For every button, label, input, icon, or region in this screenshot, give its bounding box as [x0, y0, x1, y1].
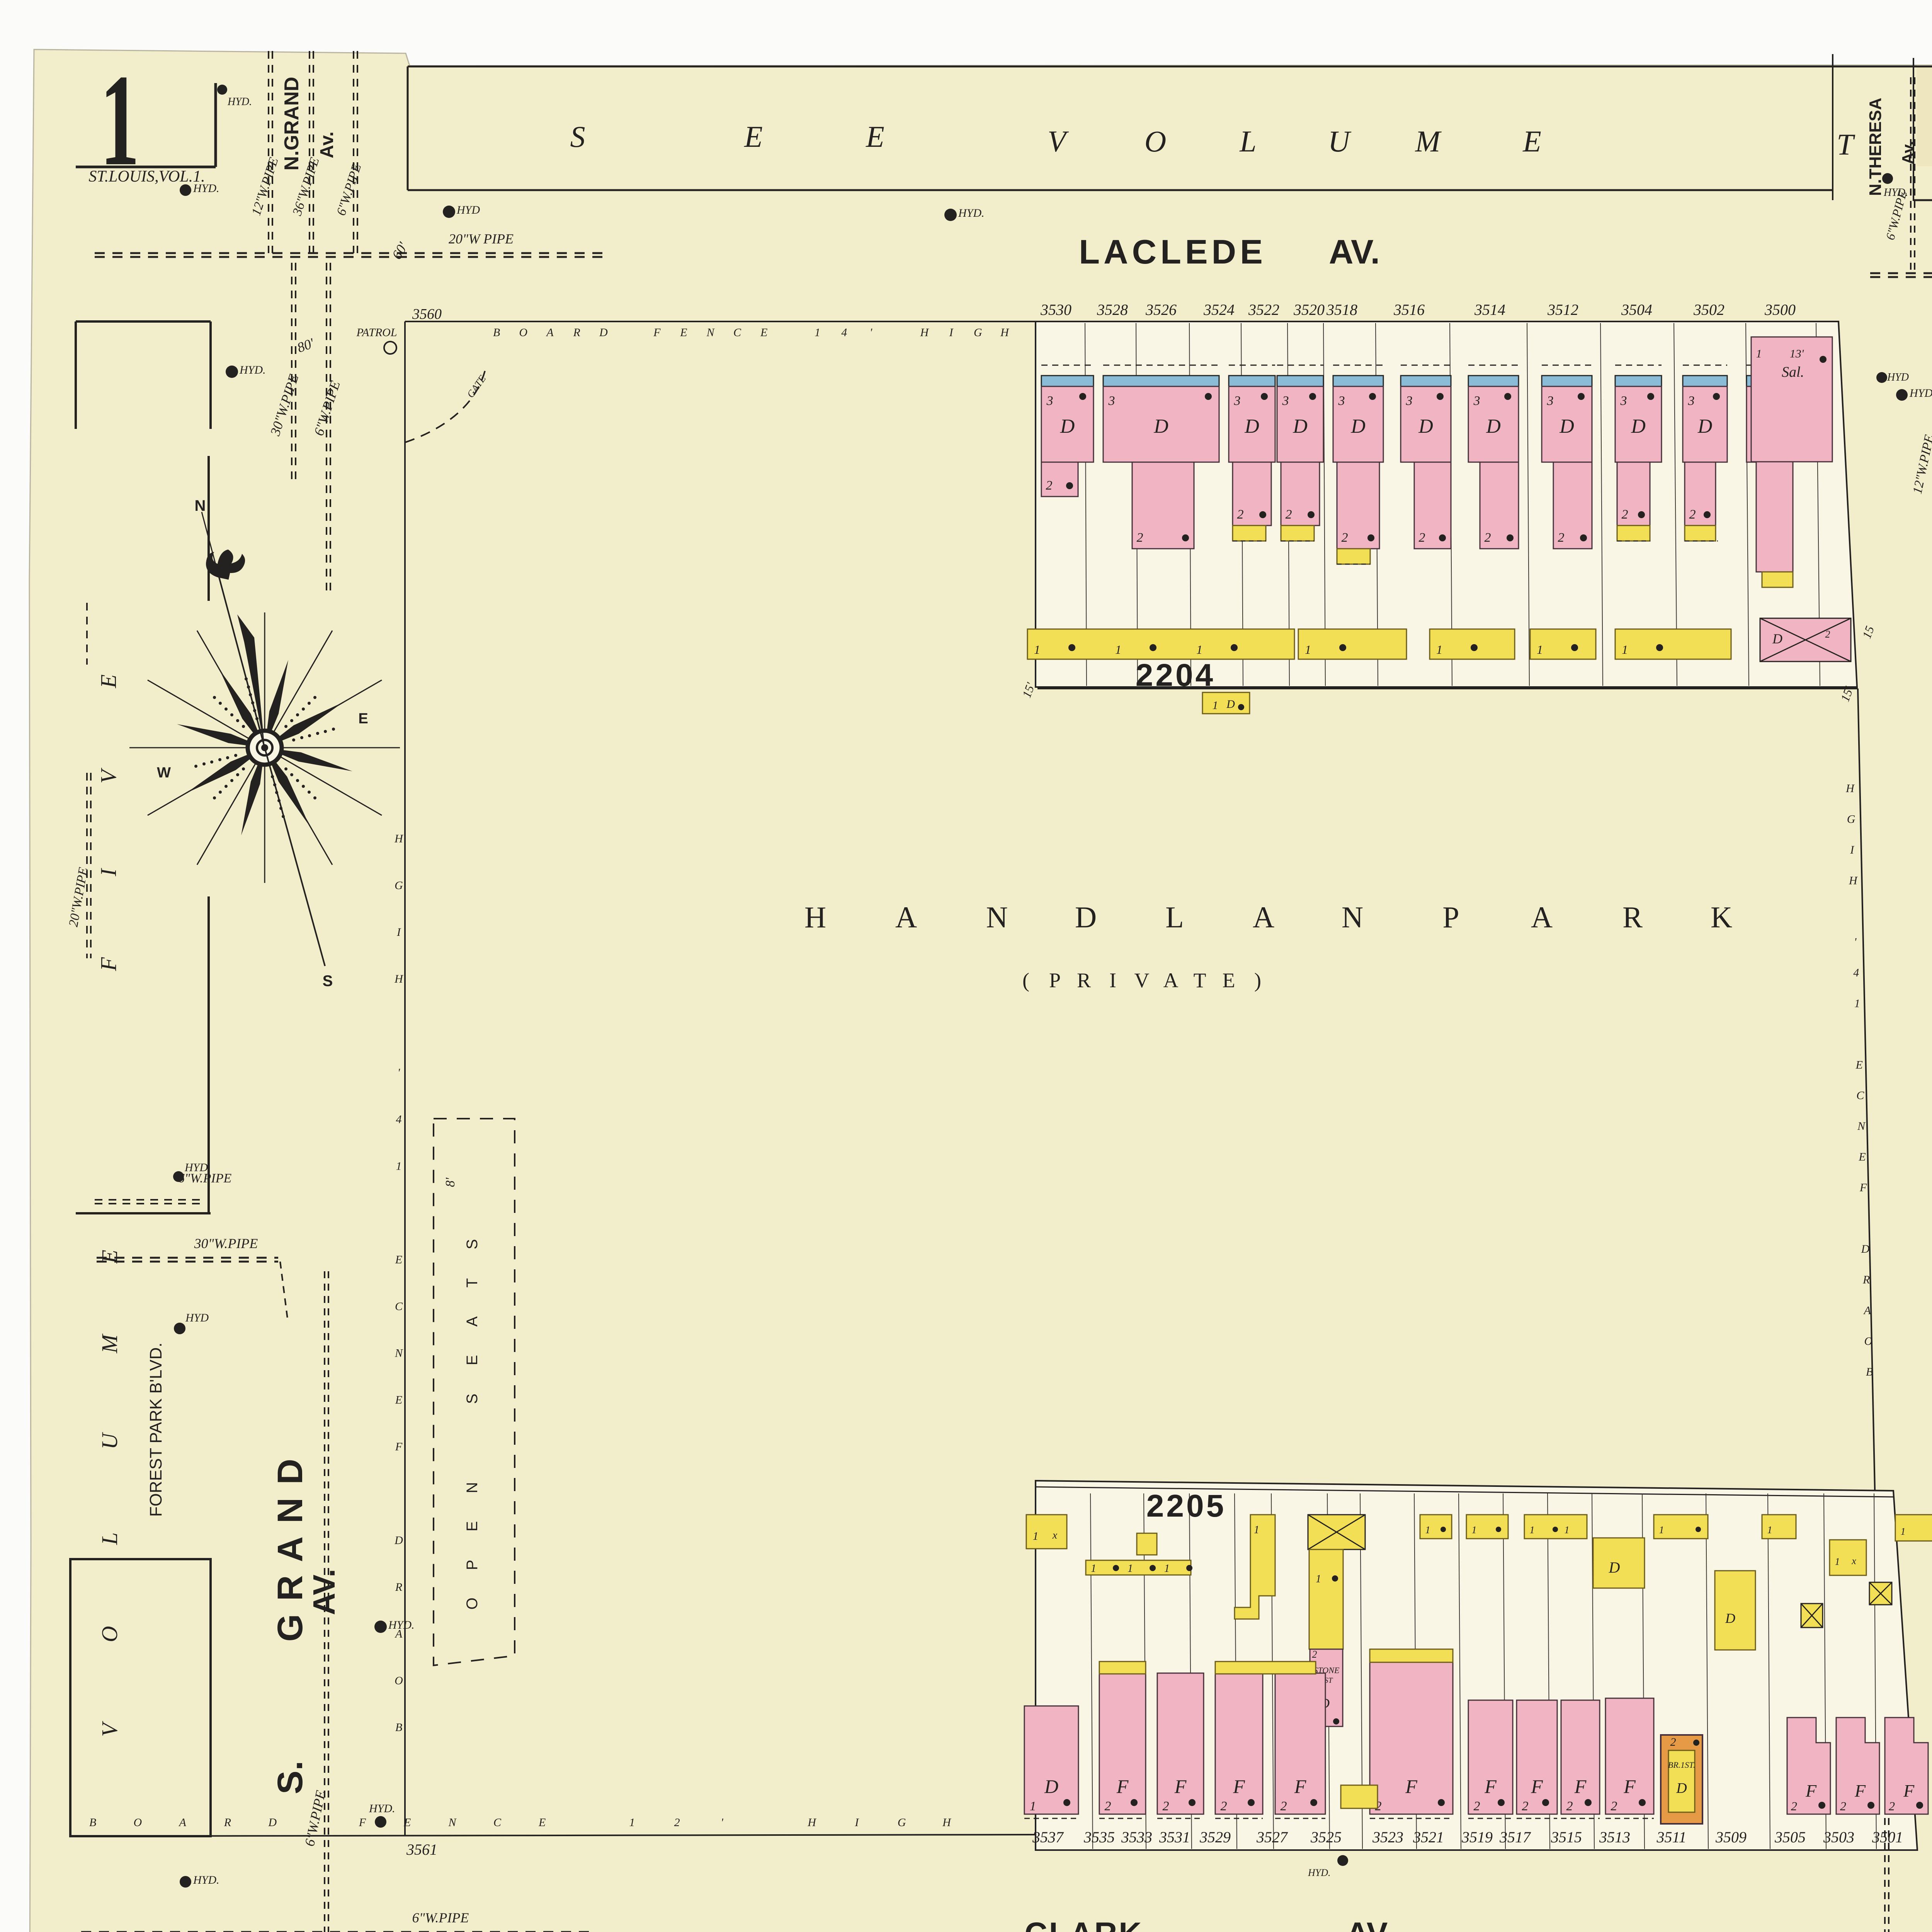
svg-text:1: 1 — [1091, 1563, 1096, 1575]
svg-text:x: x — [1851, 1555, 1856, 1566]
svg-text:1: 1 — [1436, 643, 1442, 656]
svg-text:O: O — [395, 1674, 403, 1687]
svg-text:F: F — [1623, 1776, 1636, 1797]
svg-text:PATROL: PATROL — [356, 326, 397, 339]
svg-text:2: 2 — [1670, 1736, 1676, 1748]
svg-text:T: T — [464, 1278, 481, 1287]
svg-text:1: 1 — [1128, 1563, 1133, 1575]
svg-text:R: R — [1862, 1274, 1870, 1286]
svg-text:HYD: HYD — [1887, 371, 1909, 383]
svg-text:(: ( — [1022, 969, 1029, 992]
svg-text:3: 3 — [1620, 394, 1627, 408]
svg-text:D: D — [1153, 415, 1168, 437]
svg-text:3520: 3520 — [1293, 301, 1325, 318]
svg-text:1: 1 — [1530, 1524, 1535, 1536]
svg-text:3: 3 — [1234, 394, 1241, 408]
svg-text:E: E — [464, 1355, 481, 1366]
svg-text:P: P — [1049, 969, 1061, 992]
svg-text:D: D — [1486, 415, 1501, 437]
svg-text:2: 2 — [1137, 531, 1143, 545]
svg-text:AV.: AV. — [1346, 1916, 1393, 1932]
svg-text:3500: 3500 — [1764, 301, 1796, 318]
svg-text:D: D — [1075, 900, 1097, 934]
svg-text:Sal.: Sal. — [1782, 364, 1804, 380]
svg-text:E: E — [464, 1521, 481, 1532]
svg-text:T: T — [1837, 128, 1855, 161]
svg-text:3: 3 — [1547, 394, 1554, 408]
svg-text:F: F — [1805, 1781, 1817, 1801]
svg-text:1: 1 — [1115, 643, 1121, 656]
svg-text:F: F — [96, 957, 121, 971]
svg-text:BR.1ST.: BR.1ST. — [1668, 1760, 1695, 1770]
svg-text:HYD: HYD — [456, 204, 480, 216]
svg-text:H: H — [942, 1816, 952, 1829]
svg-text:2: 2 — [1312, 1649, 1317, 1660]
svg-text:D: D — [1861, 1243, 1870, 1255]
svg-text:F: F — [1294, 1776, 1306, 1797]
svg-text:D: D — [1350, 415, 1366, 437]
svg-text:2: 2 — [1286, 507, 1292, 522]
svg-text:3505: 3505 — [1774, 1828, 1806, 1846]
svg-text:O: O — [1864, 1335, 1873, 1348]
svg-text:L: L — [97, 1532, 122, 1545]
svg-text:3504: 3504 — [1621, 301, 1652, 318]
svg-text:2: 2 — [1689, 507, 1696, 522]
svg-text:M: M — [97, 1333, 122, 1354]
svg-text:HYD.: HYD. — [388, 1619, 415, 1631]
svg-text:E: E — [866, 120, 884, 153]
svg-text:HYD: HYD — [185, 1311, 209, 1324]
svg-text:R: R — [395, 1581, 402, 1594]
svg-text:S: S — [323, 973, 333, 990]
svg-text:R: R — [573, 326, 580, 339]
svg-text:N: N — [464, 1482, 481, 1493]
svg-text:): ) — [1254, 969, 1261, 992]
svg-text:G: G — [395, 879, 403, 892]
svg-text:E: E — [760, 326, 767, 339]
svg-text:E: E — [358, 711, 368, 727]
svg-text:4: 4 — [396, 1113, 402, 1126]
svg-text:LACLEDE: LACLEDE — [1079, 233, 1267, 271]
svg-text:D: D — [394, 1534, 403, 1547]
svg-text:F: F — [1174, 1776, 1187, 1797]
svg-text:3515: 3515 — [1551, 1828, 1582, 1846]
svg-text:H: H — [920, 326, 930, 339]
svg-text:H: H — [394, 973, 404, 985]
svg-text:D: D — [1772, 631, 1782, 646]
svg-text:1: 1 — [1622, 643, 1628, 656]
svg-text:H: H — [394, 832, 404, 845]
svg-text:3518: 3518 — [1326, 301, 1357, 318]
svg-text:N: N — [706, 326, 715, 339]
svg-text:13': 13' — [1790, 347, 1804, 360]
svg-text:3: 3 — [1688, 394, 1695, 408]
svg-text:F: F — [1854, 1781, 1866, 1801]
svg-text:3530: 3530 — [1040, 301, 1071, 318]
svg-text:S: S — [464, 1394, 481, 1404]
svg-text:6"W.PIPE: 6"W.PIPE — [412, 1910, 469, 1925]
svg-text:E: E — [1223, 969, 1235, 992]
svg-text:HYD.: HYD. — [239, 364, 266, 376]
svg-text:1: 1 — [1537, 643, 1543, 656]
svg-text:C: C — [733, 326, 742, 339]
svg-text:2: 2 — [1474, 1799, 1480, 1813]
svg-text:3: 3 — [1046, 394, 1053, 408]
svg-text:2: 2 — [1485, 531, 1491, 545]
svg-text:3517: 3517 — [1499, 1828, 1531, 1846]
svg-text:A: A — [546, 326, 554, 339]
svg-text:D: D — [1559, 415, 1574, 437]
svg-text:P: P — [464, 1560, 481, 1570]
svg-text:K: K — [1711, 900, 1732, 934]
svg-text:D: D — [1418, 415, 1433, 437]
svg-text:3527: 3527 — [1256, 1828, 1288, 1846]
svg-text:I: I — [96, 868, 121, 877]
svg-text:1: 1 — [1254, 1524, 1259, 1536]
svg-text:S: S — [464, 1239, 481, 1250]
svg-text:HYD: HYD — [1909, 387, 1932, 400]
svg-text:P: P — [1442, 900, 1459, 934]
svg-text:2: 2 — [1046, 478, 1053, 493]
svg-text:D: D — [268, 1816, 277, 1829]
svg-text:3513: 3513 — [1599, 1828, 1630, 1846]
svg-text:F: F — [1859, 1181, 1867, 1194]
svg-text:N: N — [448, 1816, 457, 1829]
svg-text:V: V — [1134, 969, 1150, 992]
svg-text:': ' — [398, 1066, 400, 1079]
svg-text:O: O — [519, 326, 527, 339]
svg-text:2: 2 — [1825, 629, 1830, 640]
svg-text:B: B — [395, 1721, 402, 1734]
svg-text:3: 3 — [1338, 394, 1345, 408]
svg-text:O: O — [133, 1816, 142, 1829]
svg-text:HYD: HYD — [184, 1161, 208, 1174]
svg-text:': ' — [721, 1816, 723, 1829]
svg-text:HYD.: HYD. — [1308, 1867, 1331, 1878]
svg-text:': ' — [1854, 935, 1857, 948]
svg-text:A: A — [1531, 900, 1553, 934]
svg-text:1: 1 — [1213, 699, 1218, 712]
svg-text:D: D — [1226, 698, 1235, 711]
svg-text:E: E — [1522, 124, 1541, 158]
svg-text:1: 1 — [1472, 1524, 1477, 1536]
svg-text:A: A — [1163, 969, 1179, 992]
svg-text:3516: 3516 — [1393, 301, 1425, 318]
svg-text:2: 2 — [674, 1816, 680, 1829]
svg-text:FOREST PARK B'LVD.: FOREST PARK B'LVD. — [146, 1343, 165, 1517]
svg-text:H: H — [1000, 326, 1010, 339]
svg-text:3503: 3503 — [1823, 1828, 1854, 1846]
svg-text:C: C — [1856, 1089, 1864, 1102]
svg-text:B: B — [89, 1816, 96, 1829]
svg-text:3501: 3501 — [1872, 1828, 1903, 1846]
svg-text:E: E — [1858, 1151, 1866, 1163]
svg-text:2: 2 — [1840, 1799, 1846, 1813]
svg-text:R: R — [224, 1816, 231, 1829]
svg-text:4: 4 — [1853, 966, 1859, 979]
svg-text:2: 2 — [1566, 1799, 1573, 1813]
svg-text:I: I — [1109, 969, 1116, 992]
svg-text:D: D — [1044, 1776, 1058, 1797]
svg-text:B: B — [1866, 1366, 1873, 1378]
svg-text:GRAND: GRAND — [270, 1446, 310, 1641]
svg-text:CLARK: CLARK — [1025, 1916, 1143, 1932]
svg-text:D: D — [1676, 1780, 1687, 1796]
svg-text:3522: 3522 — [1248, 301, 1279, 318]
svg-text:E: E — [538, 1816, 546, 1829]
svg-text:N: N — [1857, 1120, 1866, 1133]
svg-text:O: O — [464, 1597, 481, 1609]
svg-text:H: H — [804, 900, 826, 934]
svg-text:E: E — [744, 120, 763, 153]
svg-text:8': 8' — [443, 1177, 457, 1187]
svg-text:2: 2 — [1105, 1799, 1111, 1813]
svg-text:S.: S. — [270, 1761, 310, 1794]
svg-text:R: R — [1622, 900, 1643, 934]
svg-text:1: 1 — [1756, 347, 1762, 360]
svg-text:G: G — [898, 1816, 906, 1829]
svg-text:1: 1 — [629, 1816, 635, 1829]
svg-text:N.GRAND: N.GRAND — [281, 77, 303, 171]
svg-text:3528: 3528 — [1097, 301, 1128, 318]
svg-text:3511: 3511 — [1656, 1828, 1686, 1846]
svg-text:1: 1 — [396, 1160, 402, 1172]
svg-text:1: 1 — [1030, 1799, 1036, 1813]
svg-text:3526: 3526 — [1145, 301, 1177, 318]
svg-text:2204: 2204 — [1136, 658, 1215, 693]
svg-text:E: E — [680, 326, 687, 339]
svg-text:R: R — [1077, 969, 1091, 992]
svg-text:3535: 3535 — [1083, 1828, 1115, 1846]
svg-text:2: 2 — [1163, 1799, 1169, 1813]
svg-text:2: 2 — [1622, 507, 1628, 522]
svg-text:HYD.: HYD. — [193, 182, 219, 195]
svg-text:Av.: Av. — [317, 131, 337, 158]
svg-text:U: U — [1328, 124, 1352, 158]
svg-text:1: 1 — [815, 326, 820, 339]
svg-text:F: F — [1574, 1776, 1587, 1797]
svg-text:ST.LOUIS,VOL.1.: ST.LOUIS,VOL.1. — [88, 168, 205, 185]
svg-text:1: 1 — [1196, 643, 1202, 656]
svg-text:E: E — [96, 674, 121, 688]
svg-text:1: 1 — [1767, 1524, 1772, 1536]
svg-text:F: F — [1903, 1781, 1915, 1801]
svg-text:H: H — [1845, 782, 1855, 795]
svg-text:E: E — [1855, 1058, 1863, 1071]
svg-text:H: H — [1849, 874, 1858, 887]
svg-text:E: E — [403, 1816, 411, 1829]
svg-text:1: 1 — [1854, 997, 1860, 1010]
svg-text:2: 2 — [1522, 1799, 1529, 1813]
svg-text:3502: 3502 — [1693, 301, 1725, 318]
svg-text:F: F — [1484, 1776, 1497, 1797]
svg-text:N: N — [986, 900, 1008, 934]
svg-text:2: 2 — [1281, 1799, 1287, 1813]
svg-text:1: 1 — [1034, 643, 1040, 656]
svg-text:3: 3 — [1282, 394, 1289, 408]
svg-text:3514: 3514 — [1474, 301, 1505, 318]
svg-text:M: M — [1415, 124, 1442, 158]
svg-text:F: F — [1405, 1776, 1417, 1797]
svg-text:D: D — [1293, 415, 1308, 437]
svg-text:D: D — [1725, 1611, 1735, 1626]
svg-text:W: W — [157, 765, 171, 781]
svg-text:2: 2 — [1221, 1799, 1227, 1813]
svg-text:O: O — [97, 1626, 122, 1642]
svg-text:1: 1 — [1033, 1530, 1039, 1543]
svg-text:1: 1 — [1425, 1524, 1430, 1536]
svg-text:2: 2 — [1342, 531, 1348, 545]
svg-text:2: 2 — [1889, 1799, 1895, 1813]
svg-text:HYD.: HYD. — [227, 96, 252, 108]
svg-text:': ' — [870, 326, 872, 339]
svg-text:A: A — [895, 900, 917, 934]
svg-text:D: D — [1697, 415, 1713, 437]
svg-text:3: 3 — [1108, 394, 1115, 408]
svg-text:G: G — [1847, 813, 1855, 825]
svg-text:3521: 3521 — [1413, 1828, 1444, 1846]
svg-text:F: F — [359, 1816, 366, 1829]
svg-text:3: 3 — [1406, 394, 1413, 408]
svg-text:F: F — [1531, 1776, 1543, 1797]
svg-text:G: G — [974, 326, 982, 339]
svg-text:C: C — [493, 1816, 502, 1829]
svg-text:4: 4 — [841, 326, 847, 339]
svg-text:1: 1 — [1164, 1563, 1170, 1575]
svg-text:O: O — [1145, 124, 1166, 158]
svg-text:2: 2 — [1558, 531, 1565, 545]
svg-text:3561: 3561 — [406, 1841, 437, 1858]
svg-text:1: 1 — [1659, 1524, 1664, 1536]
svg-text:F: F — [1233, 1776, 1245, 1797]
svg-text:E: E — [395, 1394, 402, 1406]
svg-text:3537: 3537 — [1032, 1828, 1064, 1846]
svg-text:AV.: AV. — [1927, 1238, 1932, 1277]
svg-text:A: A — [1863, 1304, 1871, 1317]
svg-text:N.THERESA: N.THERESA — [1866, 98, 1885, 196]
svg-text:U: U — [97, 1432, 122, 1449]
svg-text:A: A — [178, 1816, 186, 1829]
svg-text:3512: 3512 — [1547, 301, 1578, 318]
svg-text:D: D — [1631, 415, 1646, 437]
svg-text:C: C — [395, 1300, 403, 1313]
svg-text:3524: 3524 — [1203, 301, 1235, 318]
svg-text:N: N — [395, 1347, 403, 1360]
svg-text:D: D — [1609, 1559, 1620, 1576]
svg-text:2: 2 — [1419, 531, 1425, 545]
svg-text:2: 2 — [1611, 1799, 1617, 1813]
svg-text:HYD.: HYD. — [193, 1874, 219, 1886]
svg-text:D: D — [1244, 415, 1259, 437]
svg-text:3519: 3519 — [1461, 1828, 1493, 1846]
svg-text:D: D — [599, 326, 608, 339]
svg-text:30"W.PIPE: 30"W.PIPE — [194, 1236, 258, 1251]
svg-text:B: B — [493, 326, 500, 339]
svg-text:1: 1 — [1901, 1526, 1906, 1537]
svg-text:AV.: AV. — [1329, 233, 1380, 271]
svg-text:1: 1 — [1305, 643, 1311, 656]
svg-text:3509: 3509 — [1715, 1828, 1747, 1846]
svg-text:3525: 3525 — [1310, 1828, 1342, 1846]
svg-text:N: N — [195, 497, 206, 514]
svg-text:L: L — [1239, 124, 1256, 158]
svg-text:S: S — [570, 120, 585, 153]
svg-text:A: A — [464, 1316, 481, 1327]
svg-text:20"W PIPE: 20"W PIPE — [449, 231, 514, 247]
svg-text:3533: 3533 — [1121, 1828, 1152, 1846]
svg-text:D: D — [1060, 415, 1075, 437]
svg-text:2: 2 — [1237, 507, 1244, 522]
svg-text:3531: 3531 — [1159, 1828, 1190, 1846]
svg-text:V: V — [1048, 124, 1069, 158]
svg-text:3560: 3560 — [412, 306, 442, 322]
svg-text:3529: 3529 — [1199, 1828, 1231, 1846]
svg-text:F: F — [395, 1440, 403, 1453]
svg-text:F: F — [1116, 1776, 1129, 1797]
svg-text:2205: 2205 — [1146, 1488, 1226, 1524]
svg-text:T: T — [1194, 969, 1206, 992]
svg-text:A: A — [1253, 900, 1274, 934]
svg-text:3523: 3523 — [1372, 1828, 1403, 1846]
svg-text:H: H — [807, 1816, 817, 1829]
svg-text:1: 1 — [1316, 1573, 1321, 1585]
svg-text:2: 2 — [1791, 1799, 1797, 1813]
svg-text:3: 3 — [1473, 394, 1480, 408]
svg-text:HYD.: HYD. — [958, 207, 985, 219]
svg-text:F: F — [653, 326, 661, 339]
svg-text:N: N — [1342, 900, 1363, 934]
svg-text:x: x — [1052, 1529, 1058, 1541]
svg-text:1: 1 — [1835, 1556, 1840, 1567]
svg-text:HYD.: HYD. — [369, 1802, 395, 1815]
svg-text:E: E — [395, 1253, 402, 1266]
svg-text:L: L — [1165, 900, 1184, 934]
svg-text:1: 1 — [1565, 1524, 1570, 1536]
